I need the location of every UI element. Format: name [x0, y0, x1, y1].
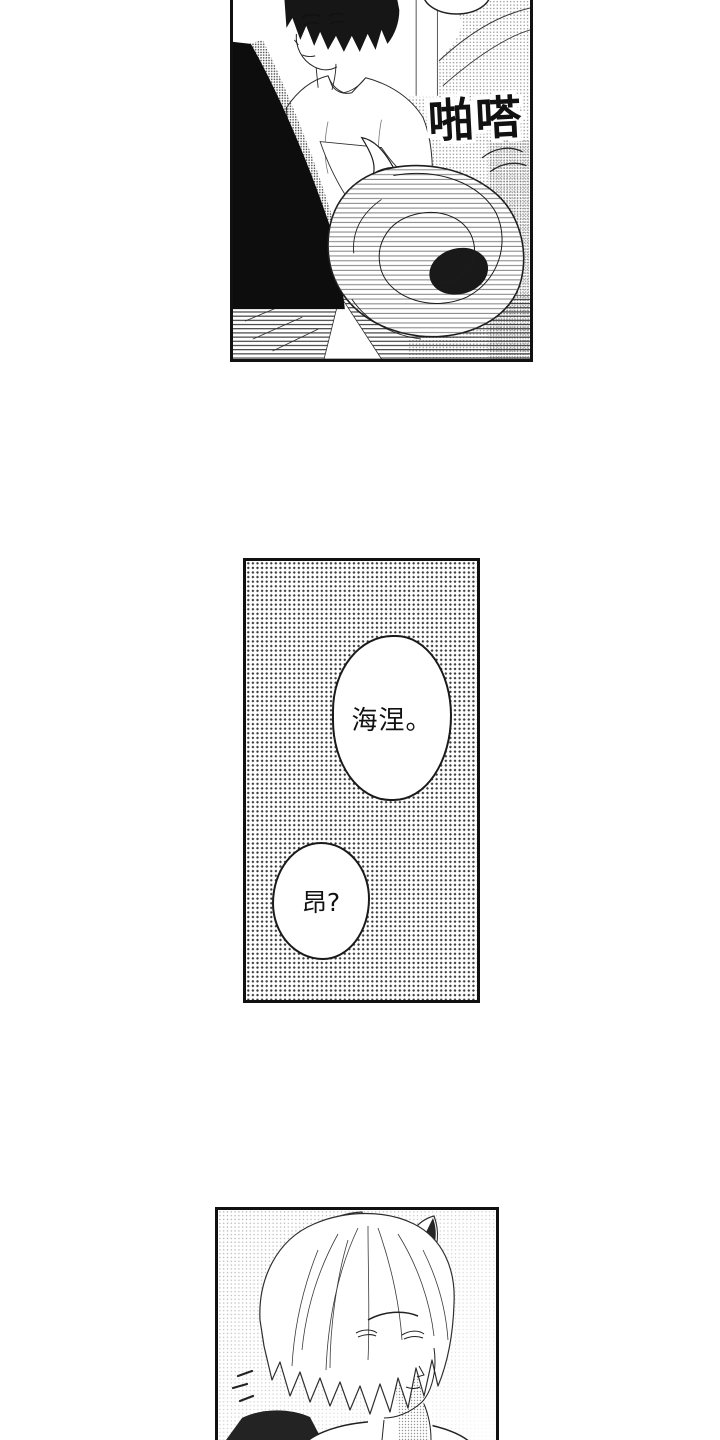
- panel-top: 啪嗒: [230, 0, 533, 362]
- panel-middle: 海涅。 昂?: [243, 558, 480, 1003]
- sfx-pata: 啪嗒: [427, 91, 525, 149]
- speech-bubble-ang: 昂?: [272, 842, 370, 960]
- panel-bottom: [215, 1207, 499, 1440]
- panel-bottom-artwork: [218, 1210, 496, 1440]
- panel-top-artwork: 啪嗒: [233, 0, 530, 359]
- speech-bubble-haine-text: 海涅。: [351, 700, 432, 737]
- wall-strip: [415, 0, 439, 97]
- speech-bubble-ang-text: 昂?: [302, 883, 340, 919]
- manga-page: 啪嗒 海涅。 昂?: [0, 0, 720, 1440]
- speech-bubble-haine: 海涅。: [332, 635, 452, 801]
- white-hair: [260, 1214, 454, 1415]
